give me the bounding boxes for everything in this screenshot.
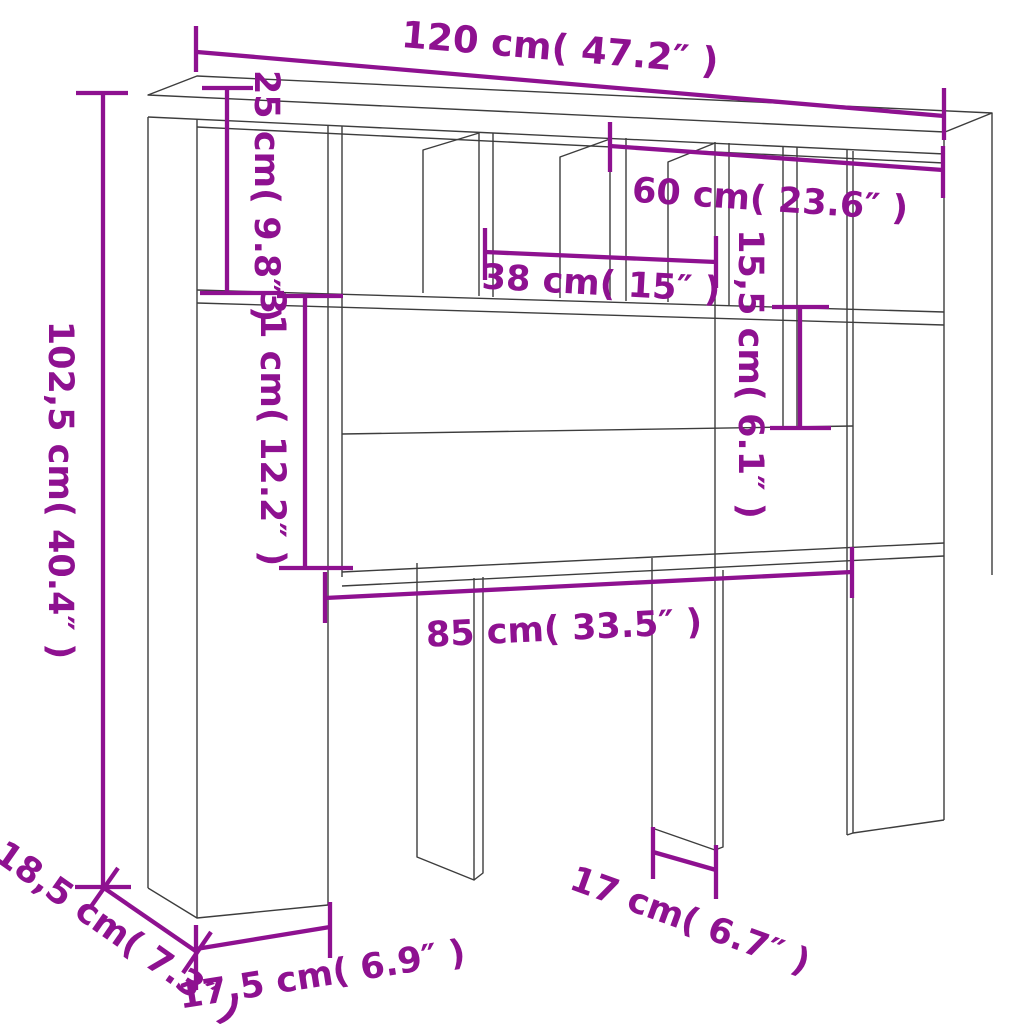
dimension-diagram: 120 cm( 47.2″ ) 25 cm( 9.8″ ) 60 cm( 23.… [0,0,1024,1024]
dim-label-top-left-compartment-height: 25 cm( 9.8″ ) [246,70,286,322]
dim-label-right-compartment-height: 15,5 cm( 6.1″ ) [730,229,770,519]
diagram-background [0,0,1024,1024]
dim-label-open-shelf-height: 31 cm( 12.2″ ) [252,290,292,566]
dim-label-overall-height: 102,5 cm( 40.4″ ) [40,321,80,659]
diagram-canvas: 120 cm( 47.2″ ) 25 cm( 9.8″ ) 60 cm( 23.… [0,0,1024,1024]
